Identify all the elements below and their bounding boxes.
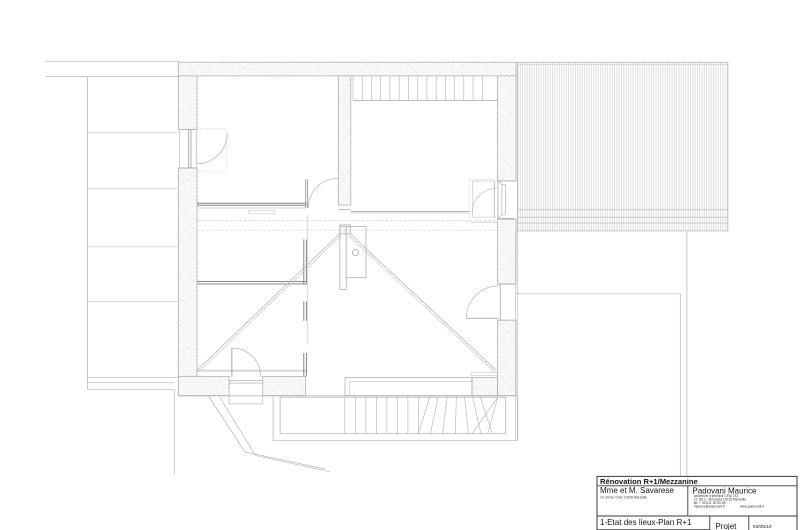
svg-text:www.padovani.fr: www.padovani.fr [740,505,765,509]
svg-text:Mme et M. Savarese: Mme et M. Savarese [600,486,674,495]
svg-text:10, Bd de Tunis 13008 Marseill: 10, Bd de Tunis 13008 Marseille [600,495,647,499]
svg-text:03/05/10: 03/05/10 [753,524,772,530]
svg-text:maurice@padovani.fr: maurice@padovani.fr [694,505,726,509]
svg-text:Rénovation R+1/Mezzanine: Rénovation R+1/Mezzanine [600,477,698,486]
svg-text:1-Etat des lieux-Plan R+1: 1-Etat des lieux-Plan R+1 [600,518,692,527]
svg-text:Projet: Projet [715,522,737,530]
